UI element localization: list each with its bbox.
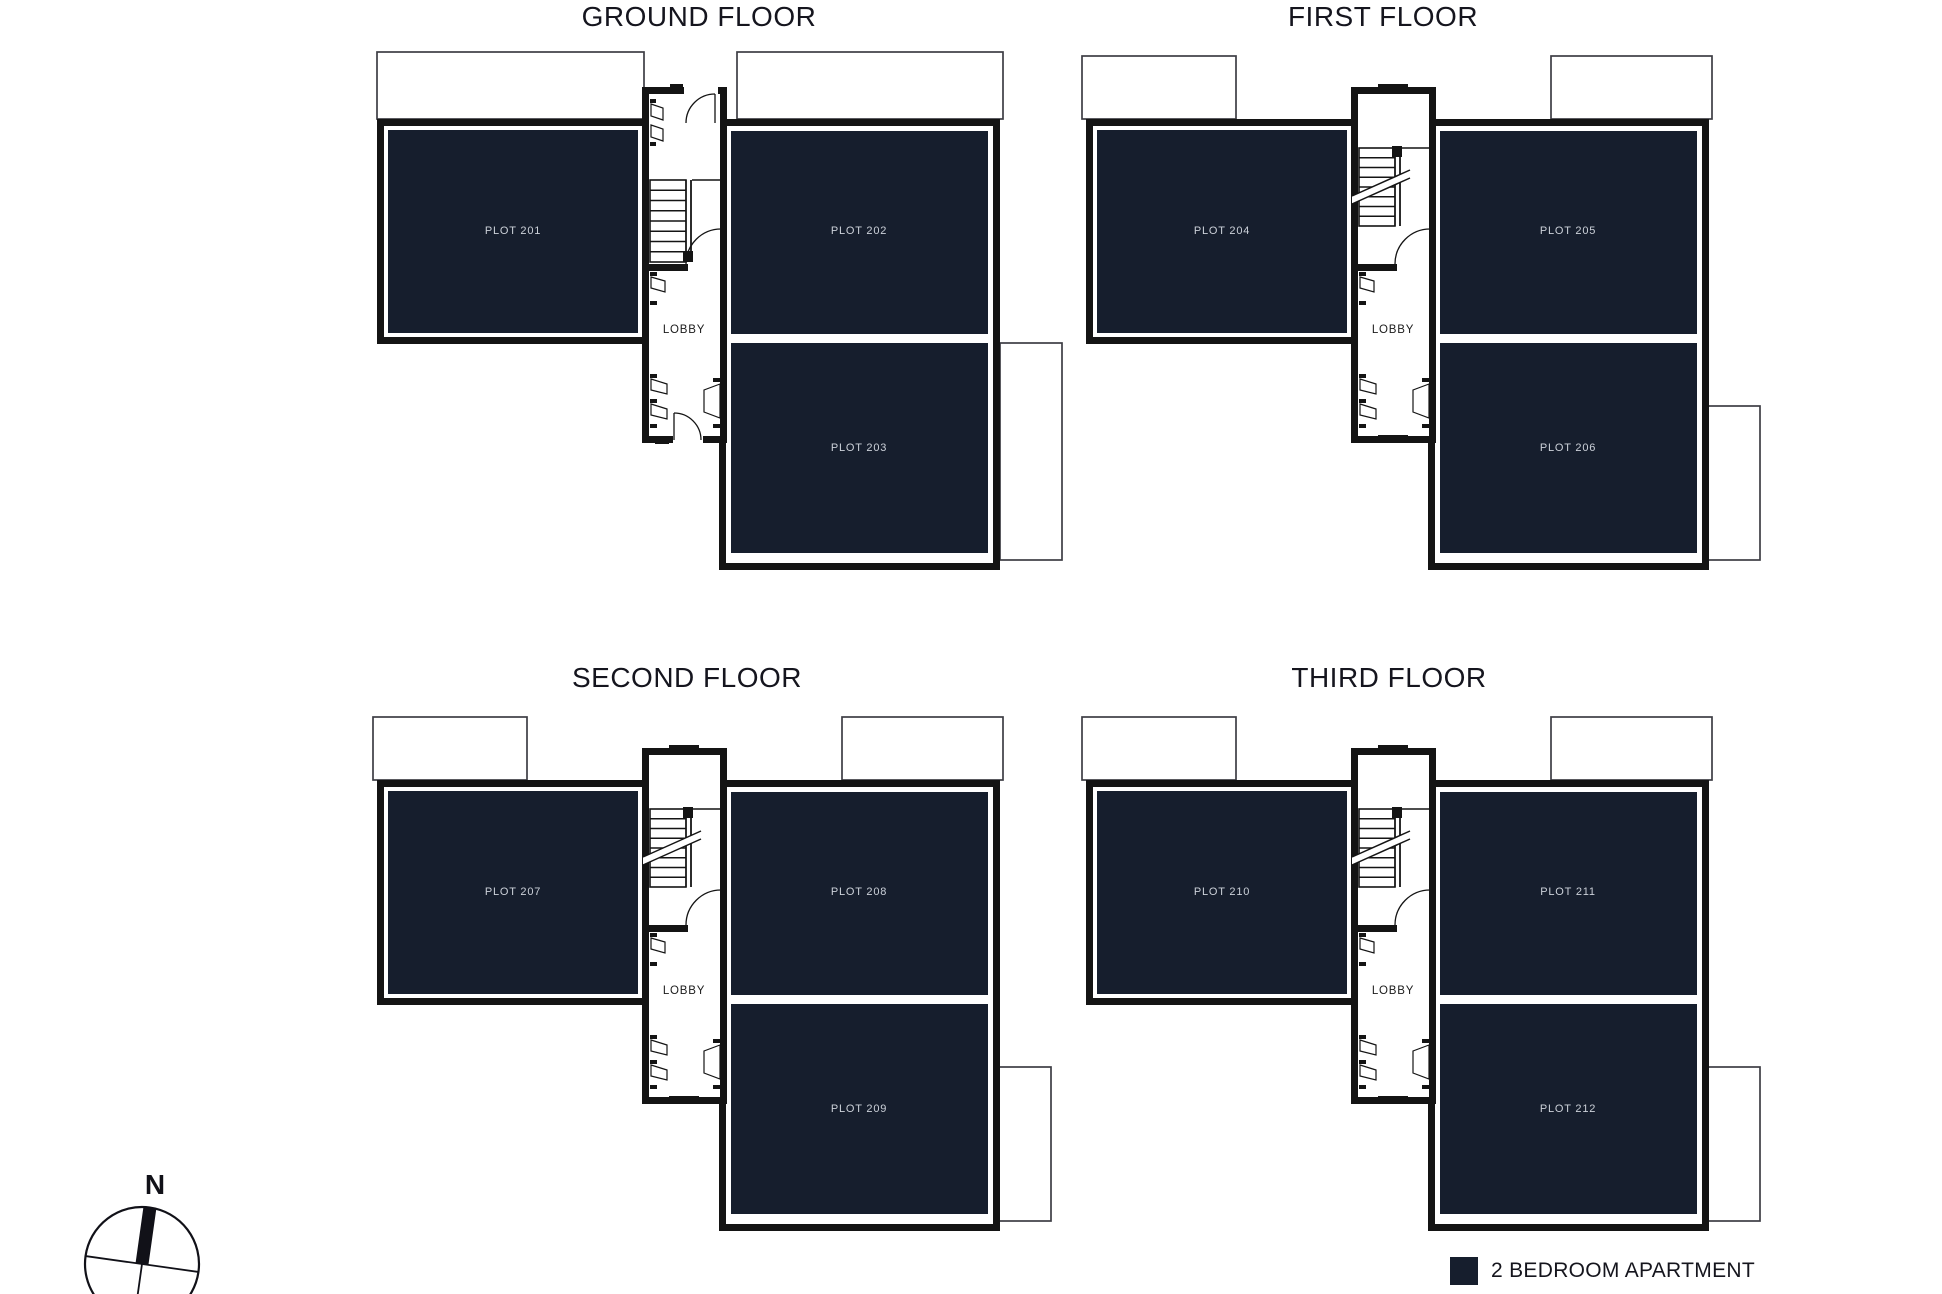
- door-jamb: [650, 301, 657, 305]
- door-jamb: [713, 1085, 720, 1089]
- entrance-threshold: [670, 84, 683, 92]
- plot-label: PLOT 202: [831, 225, 887, 237]
- lobby-label: LOBBY: [1372, 985, 1414, 997]
- plot-label: PLOT 211: [1540, 886, 1596, 898]
- lobby-partition-wall: [1358, 264, 1397, 271]
- terrace-outline: [737, 52, 1003, 119]
- floor-plan-drawing: [1079, 661, 1799, 1261]
- door-opening: [684, 82, 718, 98]
- lobby-partition-wall: [1358, 925, 1397, 932]
- door-jamb: [1422, 378, 1429, 382]
- entrance-threshold: [1378, 745, 1408, 753]
- door-jamb: [650, 374, 657, 378]
- door-leaf: [1413, 384, 1429, 418]
- entrance-threshold: [1378, 1096, 1408, 1104]
- lobby-partition-wall: [649, 925, 688, 932]
- door-jamb: [1359, 962, 1366, 966]
- door-jamb: [713, 1039, 720, 1043]
- floor-plan-drawing: [370, 0, 1090, 600]
- door-jamb: [650, 1060, 657, 1064]
- floor-plan-second-floor: SECOND FLOOR PLOT 207 PLOT 208 PLOT 209 …: [370, 661, 1090, 1261]
- terrace-outline: [377, 52, 644, 119]
- terrace-outline: [1000, 343, 1062, 560]
- door-jamb: [650, 962, 657, 966]
- stair-newel: [683, 807, 693, 818]
- legend-label: 2 BEDROOM APARTMENT: [1491, 1259, 1755, 1283]
- plot-label: PLOT 210: [1194, 886, 1250, 898]
- door-jamb: [650, 424, 657, 428]
- door-leaf: [704, 1045, 720, 1079]
- plot-label: PLOT 207: [485, 886, 541, 898]
- door-jamb: [1359, 301, 1366, 305]
- floor-title: SECOND FLOOR: [487, 662, 887, 694]
- entrance-threshold: [669, 745, 699, 753]
- terrace-outline: [1082, 56, 1236, 119]
- floor-plan-drawing: [370, 661, 1090, 1261]
- plot-label: PLOT 206: [1540, 442, 1596, 454]
- lobby-label: LOBBY: [663, 324, 705, 336]
- door-jamb: [650, 399, 657, 403]
- plot-label: PLOT 203: [831, 442, 887, 454]
- door-jamb: [1359, 1035, 1366, 1039]
- floor-plan-drawing: [1079, 0, 1799, 600]
- entrance-threshold: [1378, 435, 1408, 443]
- door-jamb: [713, 378, 720, 382]
- terrace-outline: [1082, 717, 1236, 780]
- door-opening: [673, 433, 703, 448]
- door-jamb: [1359, 374, 1366, 378]
- door-jamb: [1422, 1085, 1429, 1089]
- door-jamb: [650, 99, 656, 103]
- stair-newel: [1392, 146, 1402, 157]
- entrance-threshold: [655, 436, 669, 444]
- entrance-threshold: [1378, 84, 1408, 92]
- legend: 2 BEDROOM APARTMENT: [1450, 1257, 1755, 1285]
- terrace-outline: [1703, 406, 1760, 560]
- door-jamb: [650, 1035, 657, 1039]
- door-jamb: [650, 272, 657, 276]
- floorplan-sheet: GROUND FLOOR PLOT 201 PLOT 202 PLOT 203 …: [0, 0, 1942, 1294]
- floor-title: FIRST FLOOR: [1183, 1, 1583, 33]
- plot-label: PLOT 204: [1194, 225, 1250, 237]
- door-jamb: [1359, 399, 1366, 403]
- terrace-outline: [842, 717, 1003, 780]
- lobby-partition-wall: [649, 264, 688, 271]
- door-jamb: [1359, 424, 1366, 428]
- plot-label: PLOT 212: [1540, 1103, 1596, 1115]
- door-leaf: [704, 384, 720, 418]
- floor-plan-ground-floor: GROUND FLOOR PLOT 201 PLOT 202 PLOT 203 …: [370, 0, 1090, 600]
- compass-n-label: N: [145, 1169, 165, 1200]
- door-jamb: [1422, 1039, 1429, 1043]
- door-jamb: [650, 1085, 657, 1089]
- door-leaf: [1413, 1045, 1429, 1079]
- door-jamb: [1359, 1085, 1366, 1089]
- lobby-label: LOBBY: [663, 985, 705, 997]
- lobby-label: LOBBY: [1372, 324, 1414, 336]
- plot-label: PLOT 201: [485, 225, 541, 237]
- legend-swatch-2-bedroom: [1450, 1257, 1478, 1285]
- terrace-outline: [1551, 717, 1712, 780]
- terrace-outline: [373, 717, 527, 780]
- door-jamb: [650, 933, 657, 937]
- floor-title: THIRD FLOOR: [1189, 662, 1589, 694]
- floor-title: GROUND FLOOR: [499, 1, 899, 33]
- entrance-threshold: [669, 1096, 699, 1104]
- floor-plan-first-floor: FIRST FLOOR PLOT 204 PLOT 205 PLOT 206 L…: [1079, 0, 1799, 600]
- door-jamb: [713, 424, 720, 428]
- door-jamb: [650, 142, 656, 146]
- compass-needle: [136, 1207, 156, 1265]
- stair-newel: [1392, 807, 1402, 818]
- compass-north-icon: N: [75, 1158, 215, 1294]
- terrace-outline: [994, 1067, 1051, 1221]
- plot-label: PLOT 205: [1540, 225, 1596, 237]
- door-jamb: [1422, 424, 1429, 428]
- terrace-outline: [1703, 1067, 1760, 1221]
- plot-label: PLOT 209: [831, 1103, 887, 1115]
- door-jamb: [1359, 272, 1366, 276]
- terrace-outline: [1551, 56, 1712, 119]
- door-jamb: [1359, 1060, 1366, 1064]
- floor-plan-third-floor: THIRD FLOOR PLOT 210 PLOT 211 PLOT 212 L…: [1079, 661, 1799, 1261]
- door-jamb: [1359, 933, 1366, 937]
- plot-label: PLOT 208: [831, 886, 887, 898]
